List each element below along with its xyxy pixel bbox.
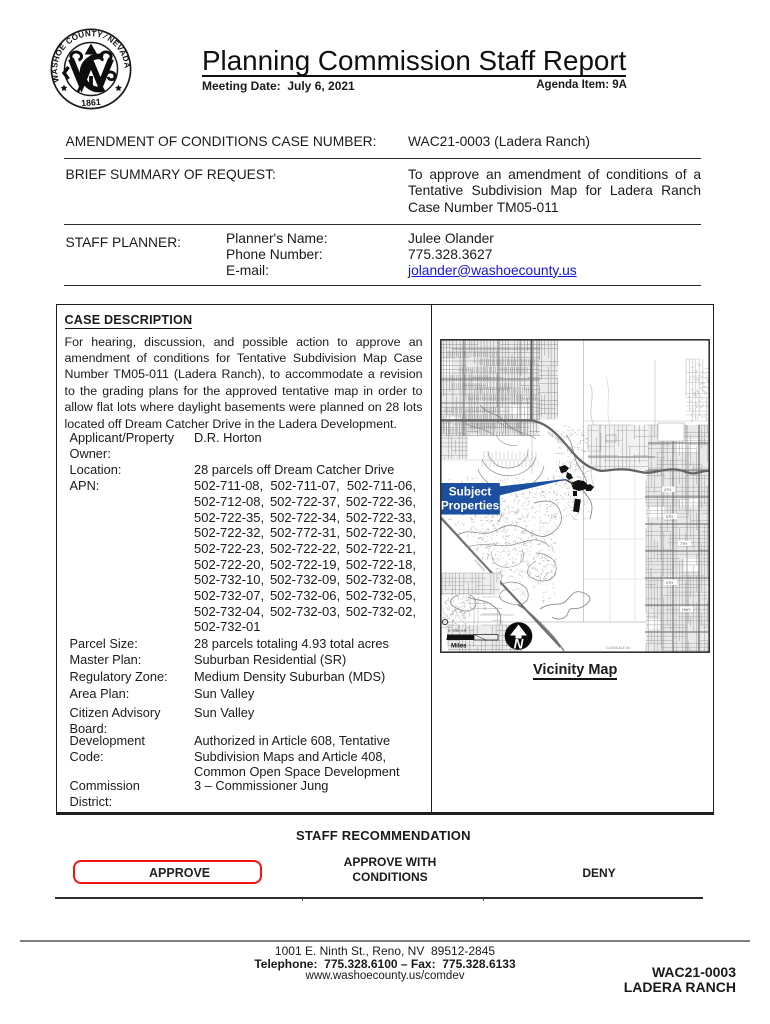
svg-text:Properties: Properties bbox=[440, 499, 499, 513]
svg-text:GLENDALE AV: GLENDALE AV bbox=[606, 646, 631, 650]
svg-text:7TH: 7TH bbox=[680, 542, 687, 546]
svg-text:9TH: 9TH bbox=[666, 581, 673, 585]
svg-text:W 4TH: W 4TH bbox=[482, 601, 487, 611]
svg-text:EL RANCHO: EL RANCHO bbox=[538, 620, 553, 637]
svg-text:1861: 1861 bbox=[81, 97, 101, 108]
svg-text:0 0.25 0.5: 0 0.25 0.5 bbox=[448, 629, 466, 633]
svg-text:HWY: HWY bbox=[682, 608, 691, 612]
svg-text:SULLIVAN LN: SULLIVAN LN bbox=[649, 568, 653, 587]
svg-text:N: N bbox=[513, 637, 523, 652]
svg-text:Subject: Subject bbox=[448, 485, 491, 499]
svg-text:Miles: Miles bbox=[451, 643, 467, 650]
svg-text:4TH: 4TH bbox=[664, 488, 671, 492]
svg-text:5TH: 5TH bbox=[666, 515, 673, 519]
svg-text:SUN VALLEY BLVD: SUN VALLEY BLVD bbox=[546, 431, 575, 453]
